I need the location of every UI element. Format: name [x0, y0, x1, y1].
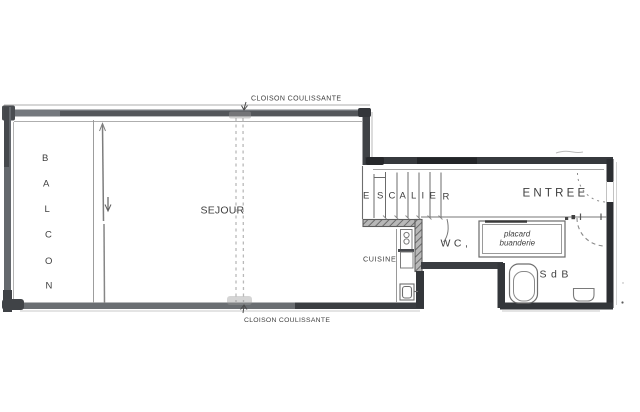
- svg-text:C: C: [389, 191, 396, 202]
- svg-text:O: O: [45, 256, 52, 267]
- svg-text:I: I: [422, 191, 425, 202]
- svg-text:placard: placard: [503, 230, 531, 239]
- svg-text:A: A: [43, 179, 50, 190]
- svg-text:R: R: [443, 192, 450, 203]
- svg-text:N: N: [46, 281, 53, 292]
- svg-text:CLOISON COULISSANTE: CLOISON COULISSANTE: [251, 96, 341, 103]
- svg-text:SEJOUR: SEJOUR: [201, 205, 245, 217]
- svg-text:L: L: [45, 204, 50, 215]
- svg-text:S: S: [377, 191, 383, 202]
- svg-text:ENTREE: ENTREE: [523, 188, 589, 200]
- svg-text:A: A: [400, 191, 407, 202]
- svg-text:CUISINE: CUISINE: [363, 255, 396, 264]
- svg-text:L: L: [411, 191, 416, 202]
- svg-text:E: E: [430, 191, 436, 202]
- svg-text:C: C: [45, 230, 52, 241]
- svg-text:buanderie: buanderie: [500, 239, 536, 248]
- svg-text:CLOISON COULISSANTE: CLOISON COULISSANTE: [244, 317, 330, 324]
- svg-text:B: B: [42, 153, 48, 164]
- svg-text:S d B: S d B: [540, 269, 570, 281]
- svg-text:E: E: [363, 191, 369, 202]
